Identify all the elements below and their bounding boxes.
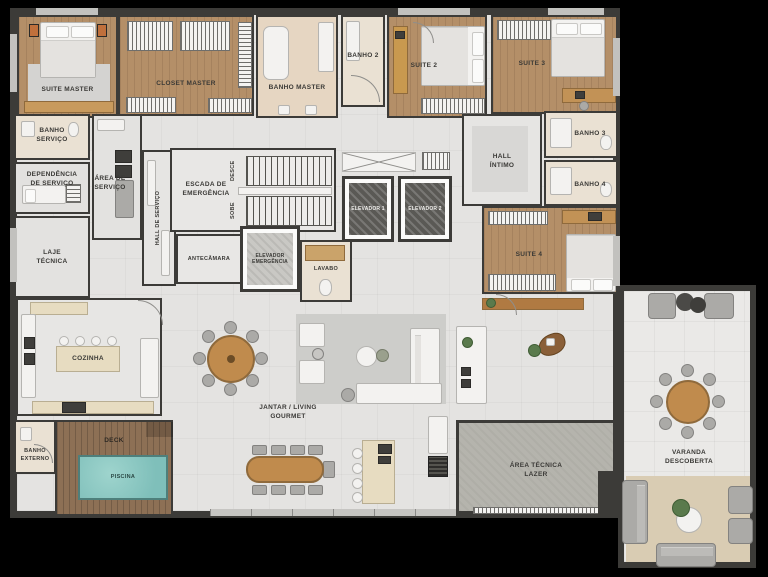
- tv: [588, 212, 602, 221]
- room-banho-3: BANHO 3: [544, 111, 618, 158]
- room-label: CLOSET MASTER: [120, 79, 252, 88]
- coffee-table-small: [376, 349, 389, 362]
- outdoor-armchair: [704, 293, 734, 319]
- kitchen-island: COZINHA: [56, 346, 120, 372]
- vanity: [20, 427, 32, 441]
- chair: [681, 426, 694, 439]
- elevator-label: ELEVADOR 2: [408, 206, 442, 212]
- grill-counter: [428, 416, 448, 454]
- laundry-sink: [97, 119, 125, 131]
- wardrobe: [497, 20, 551, 40]
- fridge-cabinet: [140, 338, 159, 398]
- nightstand: [97, 24, 107, 37]
- stair-rail: [238, 187, 332, 195]
- floorplan: SUITE MASTER CLOSET MASTER BANHO MASTER …: [0, 0, 768, 577]
- wardrobe: [488, 274, 556, 291]
- window: [10, 228, 17, 282]
- stool: [107, 336, 117, 346]
- appliance: [461, 379, 471, 388]
- room-deck: DECK PISCINA: [55, 420, 173, 516]
- stool: [75, 336, 85, 346]
- sofa-chaise: [356, 383, 442, 404]
- plant: [672, 499, 690, 517]
- plant: [486, 298, 496, 308]
- chair: [712, 395, 725, 408]
- room-antecamara: ANTECÂMARA: [176, 234, 242, 284]
- room-label: LAJE TÉCNICA: [16, 248, 88, 266]
- chair: [659, 417, 672, 430]
- stair-flight-up: [246, 156, 332, 186]
- room-label: HALL DE SERVIÇO: [155, 191, 163, 245]
- wardrobe: [488, 211, 548, 225]
- room-banho-4: BANHO 4: [544, 160, 618, 206]
- tray: [546, 338, 555, 346]
- duct-shaft: [342, 152, 416, 172]
- chair: [308, 445, 323, 455]
- window: [548, 8, 604, 15]
- washer: [115, 150, 132, 163]
- stool: [278, 105, 290, 115]
- sofa-cushions: [637, 485, 645, 542]
- wall-step: [598, 471, 614, 515]
- laptop: [575, 91, 585, 99]
- room-label: ANTECÂMARA: [178, 256, 240, 264]
- side-table: [690, 297, 706, 313]
- appliance: [378, 456, 391, 464]
- room-label: SUITE 2: [389, 61, 459, 70]
- chair: [252, 485, 267, 495]
- room-label: BANHO 4: [564, 180, 616, 189]
- chair: [659, 373, 672, 386]
- pool: PISCINA: [78, 455, 168, 500]
- room-suite-4: SUITE 4: [482, 206, 618, 294]
- outdoor-armchair: [728, 486, 753, 514]
- room-label: ESCADA DE EMERGÊNCIA: [174, 180, 238, 198]
- room-dependencia-servico: DEPENDÊNCIA DE SERVIÇO: [14, 162, 90, 214]
- varanda-round-dining-set: [650, 364, 726, 440]
- wardrobe: [127, 21, 173, 51]
- coffee-machine: [461, 367, 471, 376]
- pillow: [46, 26, 69, 38]
- wardrobe: [180, 21, 230, 51]
- living-label: JANTAR / LIVING GOURMET: [248, 403, 328, 421]
- room-hall-intimo: HALL ÍNTIMO: [462, 114, 542, 206]
- room-label: COZINHA: [72, 354, 104, 363]
- room-label: BANHO MASTER: [258, 83, 336, 92]
- room-suite-master: SUITE MASTER: [17, 15, 118, 118]
- window: [10, 34, 17, 92]
- elevator-1-shaft: ELEVADOR 1: [342, 176, 394, 242]
- elevator-cab: ELEVADOR 2: [405, 183, 445, 235]
- outdoor-sofa: [622, 480, 648, 544]
- room-escada-emergencia: ESCADA DE EMERGÊNCIA DESCE SOBE: [170, 148, 336, 232]
- elevator-cab: ELEVADOR EMERGÊNCIA: [247, 233, 293, 285]
- room-banho-2: BANHO 2: [341, 15, 385, 107]
- appliance: [378, 444, 392, 454]
- sliding-door-window: [210, 509, 456, 516]
- stool: [59, 336, 69, 346]
- chair: [271, 445, 286, 455]
- pillow: [472, 32, 484, 56]
- blanket: [567, 235, 615, 278]
- stool: [352, 463, 363, 474]
- pillow: [71, 26, 94, 38]
- round-table: [666, 380, 710, 424]
- vanity: [305, 245, 345, 261]
- chair: [323, 461, 335, 478]
- pillow: [556, 23, 578, 35]
- chair: [290, 445, 305, 455]
- room-closet-master: CLOSET MASTER: [118, 15, 254, 116]
- dining-table: [246, 456, 324, 483]
- elevator-cab: ELEVADOR 1: [349, 183, 387, 235]
- room-lavabo: LAVABO: [300, 240, 352, 302]
- chair: [703, 373, 716, 386]
- elevator-label: ELEVADOR EMERGÊNCIA: [252, 253, 288, 265]
- chair: [650, 395, 663, 408]
- room-label: ÁREA TÉCNICA LAZER: [459, 461, 613, 479]
- room-suite-2: SUITE 2: [387, 15, 487, 118]
- chair: [271, 485, 286, 495]
- bar-counter: [362, 440, 395, 504]
- pillow: [580, 23, 602, 35]
- room-label: BANHO 3: [564, 129, 616, 138]
- chair: [193, 352, 206, 365]
- room-area-servico: ÁREA DE SERVIÇO: [92, 114, 142, 240]
- chair: [290, 485, 305, 495]
- window: [398, 8, 470, 15]
- wardrobe: [421, 98, 485, 114]
- elevator-2-shaft: ELEVADOR 2: [398, 176, 452, 242]
- stool: [352, 492, 363, 503]
- pillow: [472, 59, 484, 83]
- wardrobe: [126, 97, 176, 113]
- pillow: [25, 189, 36, 203]
- toilet: [319, 279, 332, 296]
- chair: [252, 445, 267, 455]
- console: [24, 101, 114, 113]
- suite-master-bed: [40, 22, 96, 78]
- elevator-emergencia-shaft: ELEVADOR EMERGÊNCIA: [240, 226, 300, 292]
- room-label: HALL ÍNTIMO: [464, 152, 540, 170]
- window: [36, 8, 98, 15]
- round-dining-set: [193, 321, 269, 397]
- duct-x-icon: [343, 153, 415, 171]
- pool-label: PISCINA: [111, 474, 135, 482]
- coffee-table: [356, 346, 377, 367]
- plant: [528, 344, 541, 357]
- stool: [305, 105, 317, 115]
- elevator-label: ELEVADOR 1: [351, 206, 385, 212]
- counter: [30, 302, 88, 315]
- wardrobe: [208, 98, 252, 113]
- blanket: [41, 40, 95, 77]
- outdoor-armchair: [648, 293, 676, 319]
- shower-door: [351, 75, 380, 102]
- pouf: [341, 388, 355, 402]
- vent-grille: [422, 152, 450, 170]
- room-label: DECK: [57, 436, 171, 445]
- oven: [24, 337, 35, 349]
- buffet-cabinet: [456, 326, 487, 404]
- side-table: [312, 348, 324, 360]
- counter: [32, 401, 154, 414]
- armchair: [299, 323, 325, 347]
- outdoor-sofa: [656, 543, 716, 567]
- room-label: SUITE MASTER: [19, 85, 116, 94]
- chair: [703, 417, 716, 430]
- chair: [224, 321, 237, 334]
- chair: [308, 485, 323, 495]
- window: [613, 38, 620, 96]
- nightstand: [29, 24, 39, 37]
- stool: [352, 448, 363, 459]
- room-label: BANHO 2: [343, 51, 383, 60]
- room-label: BANHO SERVIÇO: [16, 126, 88, 144]
- room-label: LAVABO: [302, 266, 350, 274]
- pillow: [593, 279, 613, 291]
- blanket: [552, 37, 604, 76]
- stool: [91, 336, 101, 346]
- stool: [579, 101, 589, 111]
- stair-desce-label: DESCE: [230, 156, 238, 186]
- centerpiece: [227, 355, 235, 363]
- vanity: [318, 22, 334, 72]
- suite-4-bed: [566, 234, 616, 292]
- armchair: [299, 360, 325, 384]
- long-dining-set: [246, 441, 336, 499]
- room-banho-master: BANHO MASTER: [256, 15, 338, 118]
- suite-3-bed: [551, 19, 605, 77]
- outdoor-armchair: [728, 518, 753, 544]
- chair: [681, 364, 694, 377]
- varanda-label: VARANDA DESCOBERTA: [652, 448, 726, 466]
- bathtub: [263, 26, 289, 80]
- sofa-cushions: [661, 547, 713, 556]
- chair: [224, 383, 237, 396]
- room-label: SUITE 4: [494, 250, 564, 259]
- room-area-tecnica-lazer: ÁREA TÉCNICA LAZER: [456, 420, 616, 514]
- room-suite-3: SUITE 3: [491, 15, 618, 114]
- pillow: [571, 279, 591, 291]
- room-laje-tecnica: LAJE TÉCNICA: [14, 216, 90, 298]
- vent-grille: [473, 507, 603, 514]
- window: [613, 236, 620, 286]
- grill: [428, 456, 448, 477]
- stair-flight-down: [246, 196, 332, 226]
- cooktop: [62, 402, 86, 413]
- room-label: DEPENDÊNCIA DE SERVIÇO: [16, 170, 88, 188]
- microwave: [24, 353, 35, 365]
- chair: [255, 352, 268, 365]
- room-label: ÁREA DE SERVIÇO: [94, 174, 126, 192]
- desk: [562, 88, 616, 103]
- plant: [462, 337, 473, 348]
- room-banho-servico: BANHO SERVIÇO: [14, 114, 90, 160]
- stair-sobe-label: SOBE: [230, 196, 238, 226]
- deck-step: [146, 422, 173, 437]
- stool: [352, 478, 363, 489]
- laptop: [395, 31, 405, 39]
- room-label: SUITE 3: [497, 59, 567, 68]
